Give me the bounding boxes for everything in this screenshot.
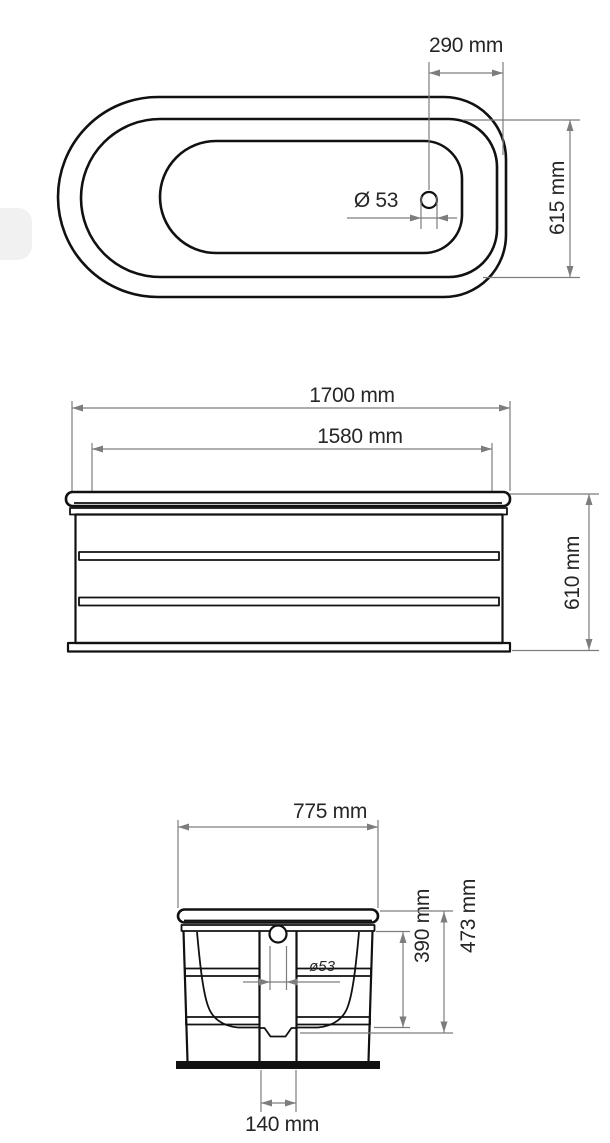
groove-upper-left bbox=[185, 969, 260, 977]
dim-label-drain-diameter-side: ø53 bbox=[309, 958, 336, 975]
arrowhead bbox=[586, 494, 593, 505]
drain-hole bbox=[421, 192, 437, 208]
base-plinth-front bbox=[68, 643, 510, 652]
dim-label-drain-diameter: Ø 53 bbox=[354, 189, 398, 212]
front-view: 1700 mm 1580 mm 610 mm bbox=[66, 384, 599, 652]
body-groove-upper bbox=[79, 552, 499, 560]
dim-label-drain-channel: 140 mm bbox=[245, 1113, 319, 1136]
dim-label-height: 610 mm bbox=[561, 536, 584, 610]
arrowhead bbox=[400, 1017, 407, 1028]
dim-label-overall-depth: 473 mm bbox=[457, 879, 480, 953]
dim-drain-diameter: Ø 53 bbox=[347, 189, 457, 229]
dim-drain-channel-140: 140 mm bbox=[245, 1070, 319, 1136]
bathtub-drawing: 290 mm Ø 53 615 mm 1700 mm bbox=[0, 0, 610, 1143]
dim-width-615: 615 mm bbox=[463, 120, 580, 278]
dim-label-width: 615 mm bbox=[546, 161, 569, 235]
dim-label-overall-width: 775 mm bbox=[293, 800, 367, 823]
dim-inner-depth-390: 390 mm bbox=[374, 889, 434, 1028]
drain-hole-section bbox=[270, 926, 287, 943]
arrowhead bbox=[567, 266, 574, 277]
arrowhead bbox=[285, 1100, 296, 1107]
dim-overall-length-1700: 1700 mm bbox=[72, 384, 510, 491]
dim-label-body-length: 1580 mm bbox=[317, 425, 402, 448]
arrowhead bbox=[259, 979, 270, 986]
basin-interior-left bbox=[197, 932, 260, 1028]
arrowhead bbox=[400, 932, 407, 943]
side-view: 775 mm ø53 390 mm bbox=[176, 800, 480, 1136]
dim-label-overall-length: 1700 mm bbox=[309, 384, 394, 407]
arrowhead bbox=[567, 120, 574, 131]
arrowhead bbox=[441, 912, 448, 923]
arrowhead bbox=[437, 215, 448, 222]
base-plinth-side bbox=[176, 1061, 380, 1069]
watermark-smudge bbox=[0, 208, 32, 260]
drain-channel-walls bbox=[260, 931, 297, 1061]
drain-sump bbox=[260, 1028, 297, 1037]
top-view: 290 mm Ø 53 615 mm bbox=[58, 34, 580, 297]
arrowhead bbox=[499, 405, 510, 412]
arrowhead bbox=[178, 824, 189, 831]
body-groove-lower bbox=[79, 598, 499, 606]
arrowhead bbox=[492, 70, 503, 77]
tub-basin-outline bbox=[160, 141, 462, 253]
arrowhead bbox=[367, 824, 378, 831]
dim-label-inner-depth: 390 mm bbox=[411, 889, 434, 963]
arrowhead bbox=[261, 1100, 272, 1107]
arrowhead bbox=[586, 639, 593, 650]
arrowhead bbox=[410, 215, 421, 222]
dim-height-610: 610 mm bbox=[510, 494, 599, 651]
arrowhead bbox=[72, 405, 83, 412]
arrowhead bbox=[287, 979, 298, 986]
arrowhead bbox=[92, 446, 103, 453]
arrowhead bbox=[429, 70, 440, 77]
dim-drain-offset-290: 290 mm bbox=[429, 34, 503, 190]
arrowhead bbox=[441, 1022, 448, 1033]
dim-body-length-1580: 1580 mm bbox=[92, 425, 492, 491]
basin-interior-right bbox=[297, 932, 360, 1028]
drawing-canvas: 290 mm Ø 53 615 mm 1700 mm bbox=[0, 0, 610, 1143]
tub-body-front bbox=[76, 515, 503, 644]
dim-overall-width-775: 775 mm bbox=[178, 800, 378, 908]
dim-label-drain-offset: 290 mm bbox=[429, 34, 503, 57]
dim-overall-depth-473: 473 mm bbox=[300, 879, 480, 1033]
arrowhead bbox=[481, 446, 492, 453]
tub-body-walls-side bbox=[184, 931, 373, 1061]
